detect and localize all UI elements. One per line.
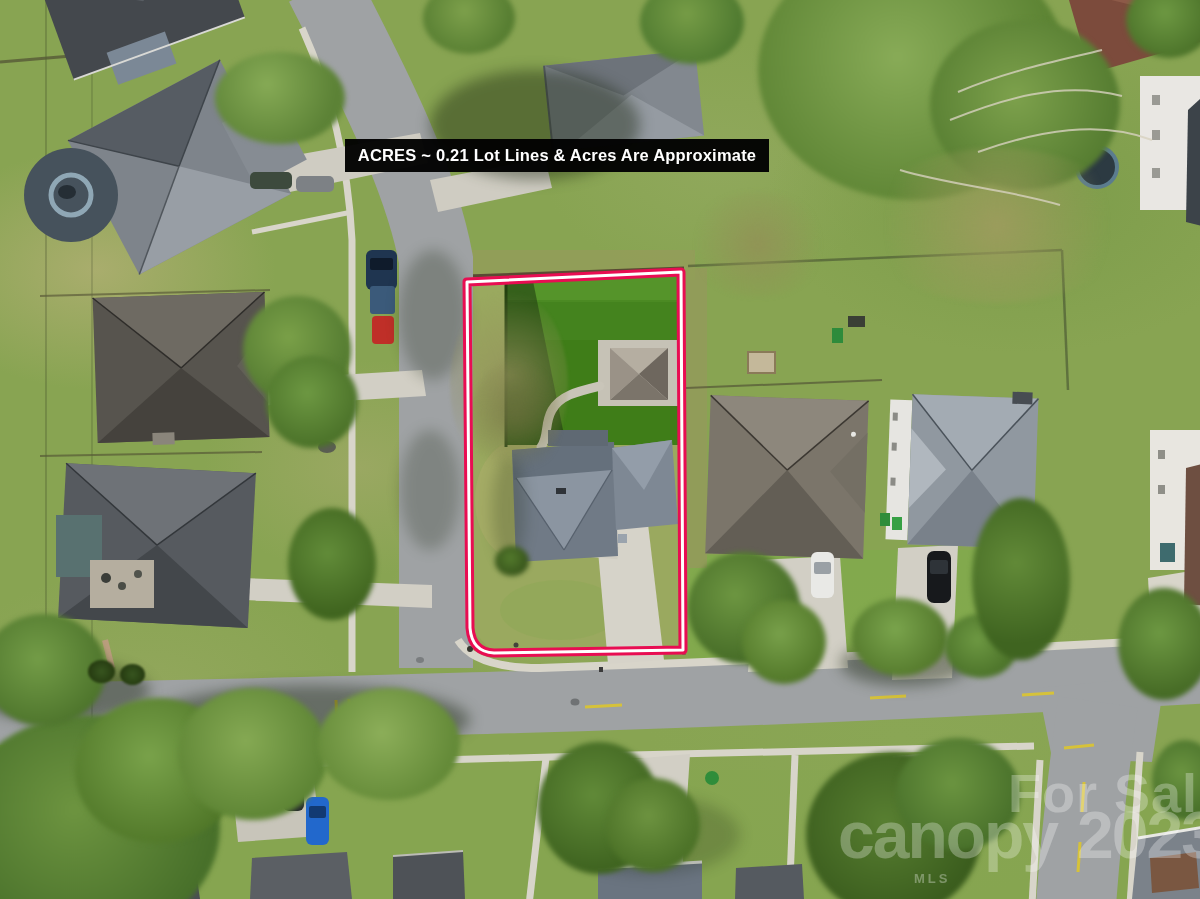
- watermark-mls: MLS: [914, 872, 950, 885]
- watermark-brand: canopy: [838, 802, 1057, 868]
- watermark-year: 2023: [1077, 802, 1200, 868]
- aerial-listing-photo: ACRES ~ 0.21 Lot Lines & Acres Are Appro…: [0, 0, 1200, 899]
- watermark-brand-year: canopy 2023: [838, 802, 1200, 868]
- subject-lot-outline: [467, 272, 683, 653]
- acreage-banner: ACRES ~ 0.21 Lot Lines & Acres Are Appro…: [345, 139, 769, 172]
- bare-branches: [900, 50, 1152, 205]
- lot-outline-outer: [467, 272, 683, 653]
- acreage-banner-text: ACRES ~ 0.21 Lot Lines & Acres Are Appro…: [358, 146, 756, 165]
- lot-outline-inner: [467, 272, 683, 653]
